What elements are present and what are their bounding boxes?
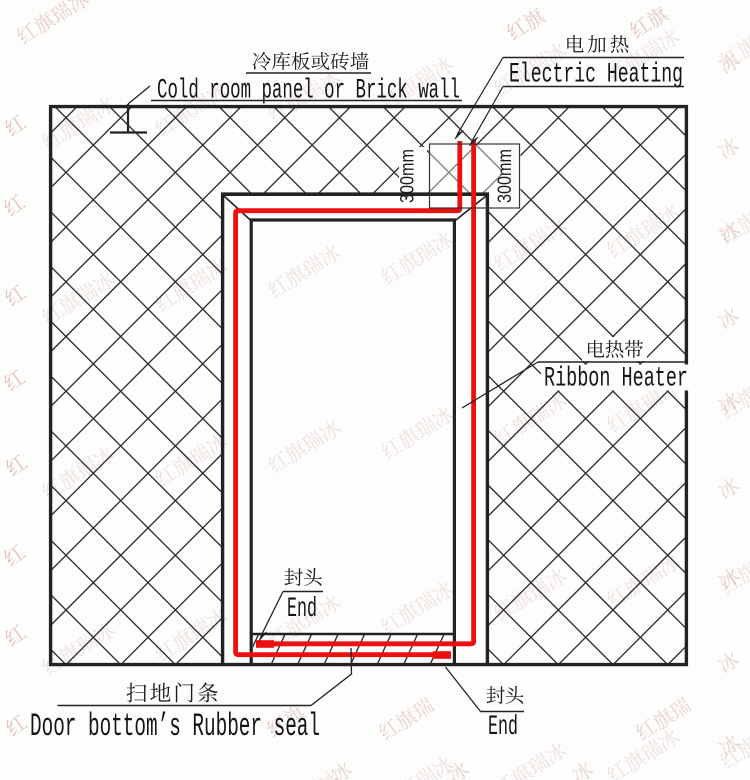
svg-text:300mm: 300mm bbox=[495, 149, 516, 203]
svg-text:300mm: 300mm bbox=[398, 149, 419, 203]
svg-text:Door bottom’s Rubber seal: Door bottom’s Rubber seal bbox=[30, 708, 320, 745]
svg-text:End: End bbox=[287, 594, 317, 625]
svg-text:Ribbon Heater: Ribbon Heater bbox=[544, 364, 688, 395]
svg-text:Cold room panel or Brick wall: Cold room panel or Brick wall bbox=[157, 76, 460, 107]
svg-text:End: End bbox=[488, 712, 518, 743]
